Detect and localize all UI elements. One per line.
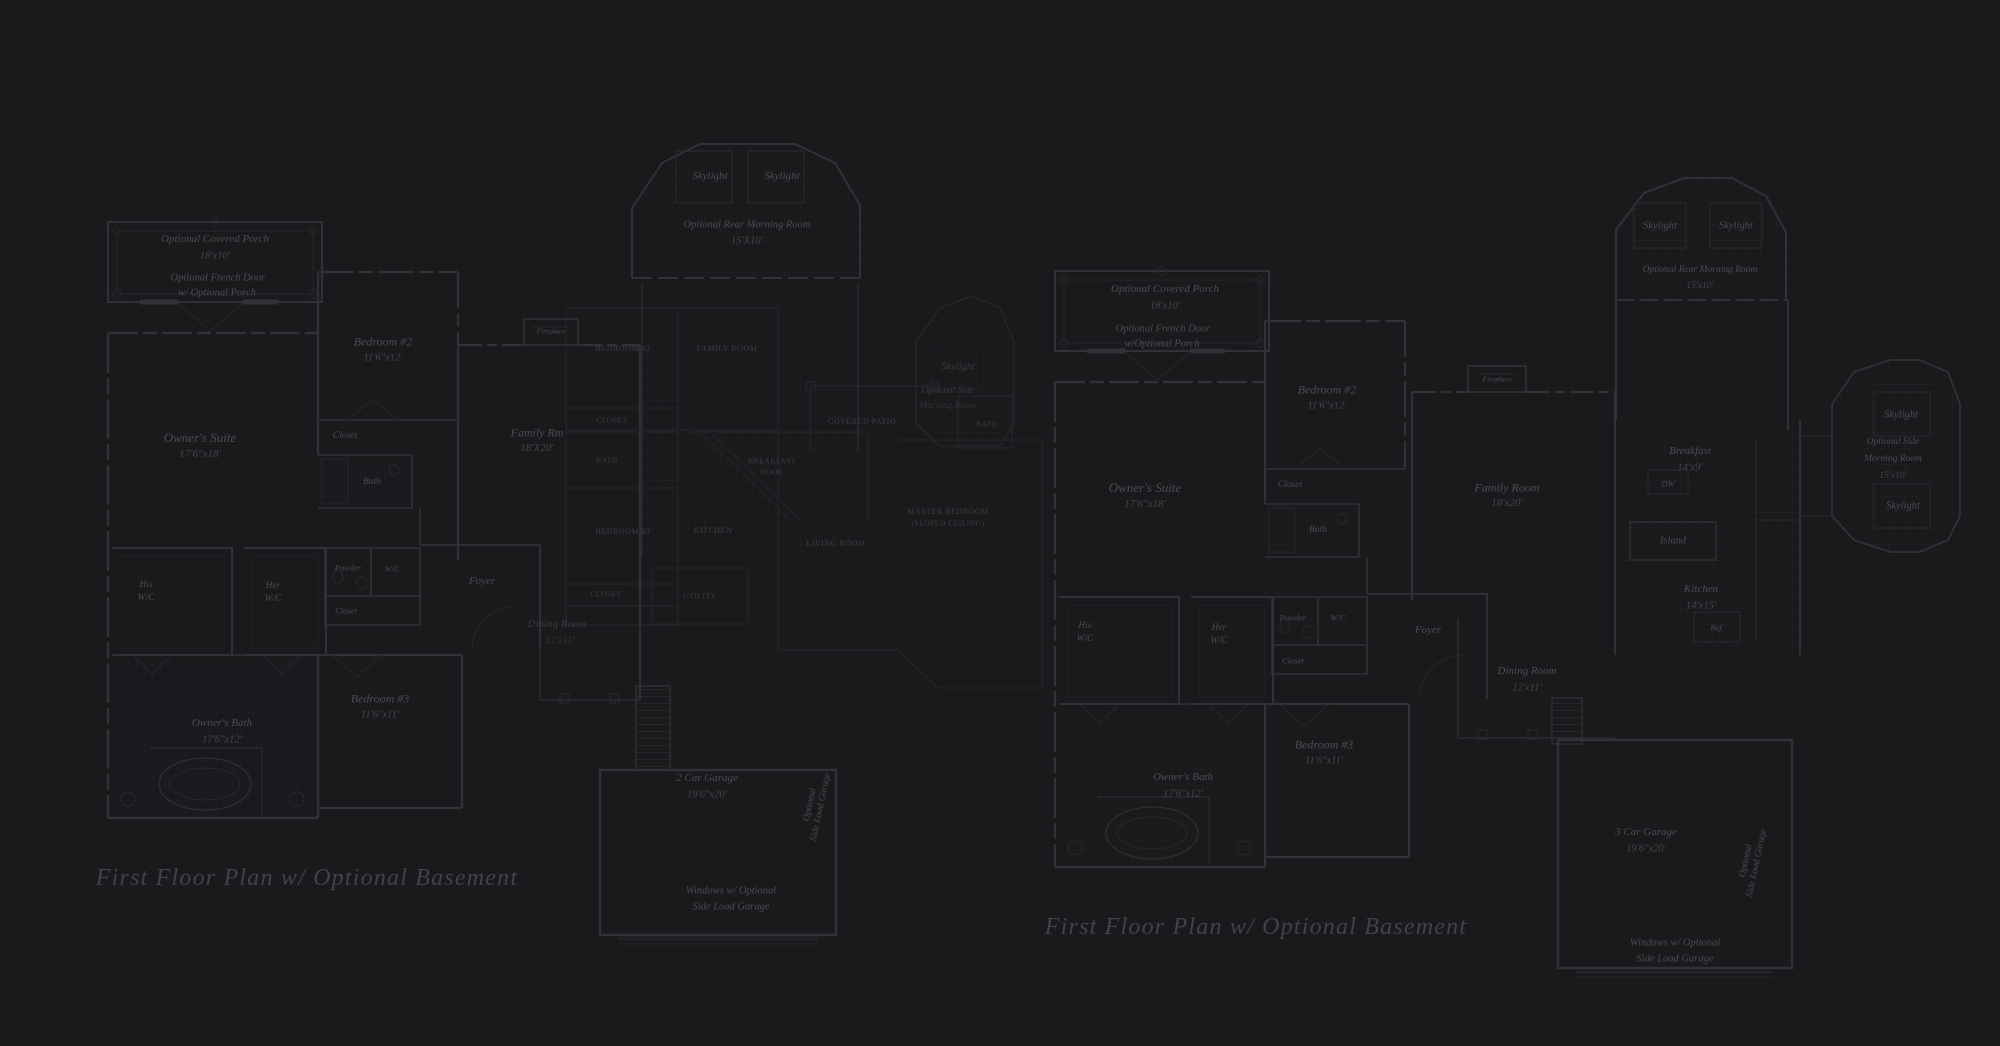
left-dining-dims: 12'x11' — [545, 634, 574, 647]
left-bedroom2-label: Bedroom #2 — [354, 335, 413, 350]
right-skylight-rear-left-label: Skylight — [1643, 219, 1677, 232]
left-windows-note-line1: Windows w/ Optional — [686, 884, 776, 897]
right-kitchen-label: Kitchen — [1684, 583, 1718, 597]
left-side-morning-line2: Morning Room — [919, 401, 977, 413]
right-side-morning-dims: 15'x10' — [1879, 471, 1906, 483]
left-hall-closet-label: Closet — [335, 606, 357, 617]
center-kitchen-label: KITCHEN — [694, 526, 733, 536]
right-dining-label: Dining Room — [1498, 665, 1557, 679]
left-family-room-label: Family Rm — [511, 426, 564, 441]
left-garage-label: 2 Car Garage — [676, 772, 738, 786]
center-bath2-label: BATH — [976, 419, 998, 428]
left-bedroom3-dims: 11'6"x11' — [361, 708, 399, 721]
left-side-morning-line1: Optional Side — [922, 386, 975, 398]
left-porch-dims: 18'x10' — [200, 249, 230, 262]
left-skylight-rear-left-label: Skylight — [692, 170, 727, 184]
left-owners-bath-label: Owner's Bath — [192, 717, 252, 731]
right-skylight-rear-right-label: Skylight — [1719, 219, 1753, 232]
right-fireplace-label: Fireplace — [1483, 374, 1512, 383]
right-breakfast-label: Breakfast — [1669, 445, 1711, 459]
left-bedroom2-dims: 11'6"x12' — [363, 351, 402, 364]
right-owners-suite-dims: 17'6"x18' — [1124, 498, 1166, 512]
left-fireplace-label: Fireplace — [537, 326, 566, 335]
center-sloped-ceiling-label: (SLOPED CEILING) — [911, 518, 984, 527]
left-plan-title: First Floor Plan w/ Optional Basement — [96, 863, 518, 893]
right-windows-note-line2: Side Load Garage — [1637, 952, 1714, 965]
right-ref-label: Ref. — [1710, 623, 1723, 634]
right-side-morning-line2: Morning Room — [1864, 454, 1922, 466]
right-morning-room-label: Optional Rear Morning Room — [1643, 265, 1758, 277]
right-foyer-label: Foyer — [1415, 624, 1441, 638]
left-wc-label: W/C — [384, 564, 399, 575]
center-bedroom3-label: BEDROOM #3 — [595, 527, 650, 537]
left-skylight-side-label: Skylight — [941, 360, 975, 373]
left-bath-label: Bath — [363, 477, 381, 489]
left-his-wc-label: W/C — [138, 593, 155, 605]
right-skylight-side-top-label: Skylight — [1884, 408, 1918, 421]
center-nook-label: NOOK — [760, 467, 784, 476]
right-plan-extras — [1412, 178, 1960, 977]
left-morning-room-label: Optional Rear Morning Room — [684, 218, 811, 231]
left-powder-label: Powder — [335, 563, 361, 574]
left-garage-dims: 19'6"x20' — [687, 788, 727, 801]
left-her-wc-label: W/C — [265, 594, 282, 606]
right-bedroom3-label: Bedroom #3 — [1295, 738, 1354, 753]
right-dw-label: DW — [1661, 479, 1674, 490]
right-bath-label: Bath — [1309, 525, 1327, 537]
right-owners-suite-label: Owner's Suite — [1109, 480, 1181, 496]
right-family-room-dims: 18'x20' — [1491, 497, 1523, 511]
right-kitchen-dims: 14'x15' — [1686, 599, 1716, 612]
left-owners-suite-label: Owner's Suite — [164, 430, 236, 446]
right-his-wc-label: W/C — [1077, 634, 1094, 646]
right-bedroom2-label: Bedroom #2 — [1298, 383, 1357, 398]
right-his-label: His — [1078, 621, 1091, 633]
right-her-label: Her — [1212, 623, 1227, 635]
right-breakfast-dims: 14'x9' — [1678, 461, 1703, 474]
left-dining-label: Dining Room — [528, 618, 587, 632]
right-skylight-side-bottom-label: Skylight — [1886, 499, 1920, 512]
left-windows-note-line2: Side Load Garage — [693, 900, 770, 913]
left-his-label: His — [139, 580, 152, 592]
right-wc-label: W/C — [1330, 613, 1345, 624]
blueprint-canvas: Optional Covered Porch 18'x10' Optional … — [0, 0, 2000, 1046]
center-bath-label: BATH — [596, 455, 618, 464]
left-owners-bath-dims: 17'6"x12' — [202, 733, 242, 746]
right-porch-label: Optional Covered Porch — [1111, 283, 1219, 297]
right-garage-label: 3 Car Garage — [1615, 826, 1677, 840]
right-bedroom3-dims: 11'6"x11' — [1305, 754, 1343, 767]
left-french-door-line1: Optional French Door — [171, 271, 266, 284]
center-family-room-label: FAMILY ROOM — [697, 344, 757, 354]
right-morning-room-dims: 15'x10' — [1686, 281, 1713, 293]
center-covered-patio-label: COVERED PATIO — [828, 417, 896, 427]
right-french-door-line2: w/Optional Porch — [1124, 337, 1199, 350]
right-owners-bath-label: Owner's Bath — [1153, 771, 1213, 785]
right-french-door-line1: Optional French Door — [1116, 322, 1211, 335]
right-side-morning-line1: Optional Side — [1867, 437, 1920, 449]
right-family-room-label: Family Room — [1475, 481, 1540, 496]
right-closet-label: Closet — [1278, 480, 1302, 492]
right-powder-label: Powder — [1280, 613, 1306, 624]
center-closet2-label: CLOSET — [590, 589, 621, 598]
center-breakfast-label: BREAKFAST — [748, 456, 796, 465]
left-closet-label: Closet — [333, 431, 357, 443]
left-her-label: Her — [266, 581, 281, 593]
right-hall-closet-label: Closet — [1282, 656, 1304, 667]
left-morning-room-dims: 15'X10' — [731, 234, 763, 247]
left-family-room-dims: 18'X20' — [520, 442, 553, 456]
right-bedroom2-dims: 11'6"x12' — [1307, 399, 1346, 412]
left-foyer-label: Foyer — [469, 575, 495, 589]
left-porch-label: Optional Covered Porch — [161, 233, 269, 247]
right-owners-bath-dims: 17'6"x12' — [1163, 787, 1203, 800]
left-bedroom3-label: Bedroom #3 — [351, 692, 410, 707]
right-windows-note-line1: Windows w/ Optional — [1630, 936, 1720, 949]
center-living-room-label: LIVING ROOM — [806, 539, 865, 549]
center-closet1-label: CLOSET — [596, 415, 627, 424]
center-master-bedroom-label: MASTER BEDROOM — [907, 507, 988, 517]
center-bedroom2-label: BEDROOM #2 — [595, 344, 650, 354]
right-island-label: Island — [1660, 534, 1686, 547]
left-skylight-rear-right-label: Skylight — [764, 170, 799, 184]
center-utility-label: UTILITY — [683, 591, 716, 600]
right-garage-dims: 19'6"x20' — [1626, 842, 1666, 855]
right-dining-dims: 12'x11' — [1512, 681, 1541, 694]
right-porch-dims: 18'x10' — [1150, 299, 1180, 312]
left-owners-suite-dims: 17'6"x18' — [179, 448, 221, 462]
right-her-wc-label: W/C — [1211, 636, 1228, 648]
right-plan-title: First Floor Plan w/ Optional Basement — [1045, 912, 1467, 942]
left-french-door-line2: w/ Optional Porch — [178, 286, 256, 299]
